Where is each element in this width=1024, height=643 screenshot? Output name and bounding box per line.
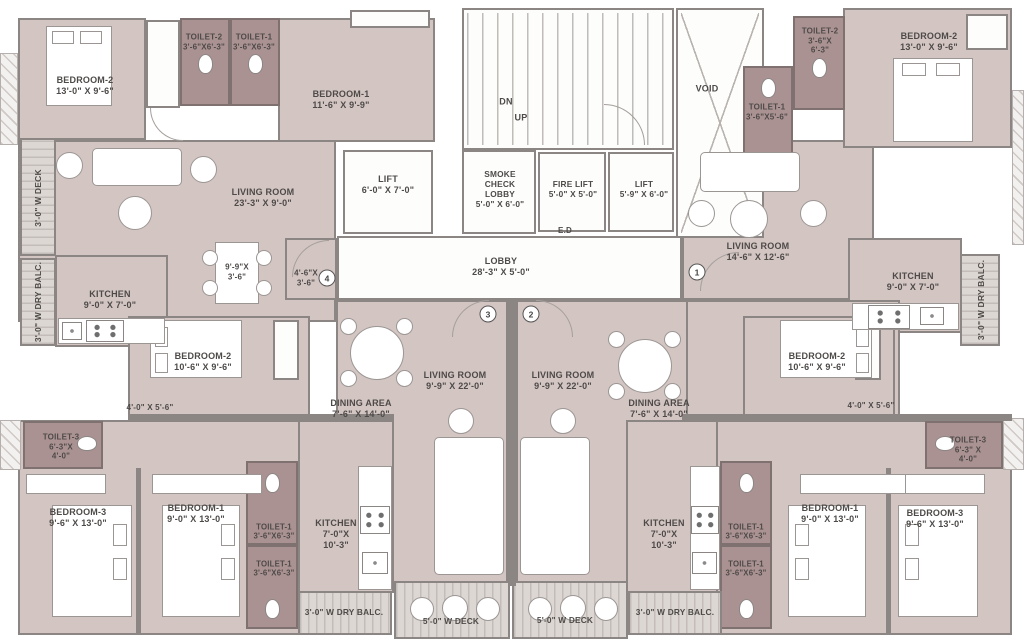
wall bbox=[136, 468, 141, 633]
open-hatch-area bbox=[1012, 90, 1024, 245]
stove-icon bbox=[691, 506, 719, 534]
unit4-bedroom2-label: BEDROOM-2 13'-0" X 9'-6" bbox=[56, 75, 114, 97]
stairs-dn-label: DN bbox=[499, 97, 512, 108]
pillow-icon bbox=[905, 558, 919, 580]
unit2-number-badge: 2 bbox=[523, 306, 540, 323]
unit2-toilet1a-label: TOILET-1 3'-6"X6'-3" bbox=[725, 523, 766, 542]
unit4-bedroom2b-label: BEDROOM-2 10'-6" X 9'-6" bbox=[174, 351, 232, 373]
deck-chair-icon bbox=[476, 597, 500, 621]
fire-lift-label: FIRE LIFT 5'-0" X 5'-0" bbox=[549, 180, 598, 200]
unit2-bedroom1-label: BEDROOM-1 9'-0" X 13'-0" bbox=[801, 503, 859, 525]
unit2-living-room-label: LIVING ROOM 9'-9" X 22'-0" bbox=[532, 370, 595, 392]
unit3-deck-label: 5'-0" W DECK bbox=[423, 617, 479, 627]
pillow-icon bbox=[795, 524, 809, 546]
armchair-icon bbox=[190, 156, 217, 183]
pillow-icon bbox=[221, 558, 235, 580]
pillow-icon bbox=[155, 353, 168, 373]
armchair-icon bbox=[688, 200, 715, 227]
sink-icon bbox=[692, 552, 717, 574]
unit4-toilet1-label: TOILET-1 3'-6"X6'-3" bbox=[233, 32, 275, 51]
void-label: VOID bbox=[696, 84, 719, 95]
lobby-label: LOBBY 28'-3" X 5'-0" bbox=[472, 256, 530, 278]
open-hatch-area bbox=[0, 420, 21, 470]
open-hatch-area bbox=[1003, 418, 1024, 470]
unit3-toilet1a-label: TOILET-1 3'-6"X6'-3" bbox=[253, 523, 294, 542]
unit4-dining-table-label: 9'-9"X 3'-6" bbox=[225, 262, 249, 281]
room-unit4-toilet1 bbox=[230, 18, 280, 106]
sink-icon bbox=[62, 322, 82, 340]
armchair-icon bbox=[448, 408, 474, 434]
chair-icon bbox=[256, 250, 272, 266]
sink-icon bbox=[362, 552, 388, 574]
chair-icon bbox=[256, 280, 272, 296]
wardrobe bbox=[152, 474, 262, 494]
pillow-icon bbox=[856, 353, 869, 373]
wall bbox=[682, 414, 1012, 421]
unit4-kitchen-label: KITCHEN 9'-0" X 7'-0" bbox=[84, 289, 136, 311]
unit4-foyer-label: 4'-6"X 3'-6" bbox=[294, 268, 318, 287]
dry-balcony-east-label: 3'-0" W DRY BALC. bbox=[976, 260, 986, 340]
wc-fixture-icon bbox=[265, 473, 280, 493]
wardrobe bbox=[800, 474, 910, 494]
chair-icon bbox=[340, 370, 357, 387]
wardrobe bbox=[26, 474, 106, 494]
wc-fixture-icon bbox=[198, 54, 213, 74]
unit4-passage-label: 4'-0" X 5'-6" bbox=[127, 403, 174, 413]
armchair-icon bbox=[550, 408, 576, 434]
chair-icon bbox=[202, 250, 218, 266]
unit2-toilet3-label: TOILET-3 6'-3" X 4'-0" bbox=[950, 436, 987, 465]
unit3-living-room-label: LIVING ROOM 9'-9" X 22'-0" bbox=[424, 370, 487, 392]
party-wall bbox=[508, 298, 516, 586]
deck-west-label: 3'-0" W DECK bbox=[33, 169, 43, 227]
dining-table bbox=[350, 326, 404, 380]
room-unit4-bedroom1 bbox=[278, 18, 435, 142]
sofa bbox=[700, 152, 800, 192]
deck-chair-icon bbox=[594, 597, 618, 621]
pillow-icon bbox=[113, 558, 127, 580]
pillow-icon bbox=[795, 558, 809, 580]
bed bbox=[893, 58, 973, 142]
stove-icon bbox=[86, 320, 124, 342]
wc-fixture-icon bbox=[739, 473, 754, 493]
wc-fixture-icon bbox=[77, 436, 97, 451]
unit3-dining-area-label: DINING AREA 7'-6" X 14'-0" bbox=[330, 398, 391, 420]
unit1-living-room-label: LIVING ROOM 14'-6" X 12'-6" bbox=[727, 241, 790, 263]
core-lift-label: LIFT 5'-9" X 6'-0" bbox=[620, 180, 669, 200]
unit3-kitchen-label: KITCHEN 7'-0"X 10'-3" bbox=[315, 518, 356, 550]
unit2-deck-label: 5'-0" W DECK bbox=[537, 616, 593, 626]
coffee-table-icon bbox=[730, 200, 768, 238]
deck-unit3 bbox=[394, 581, 510, 639]
wardrobe bbox=[966, 14, 1008, 50]
unit3-number-badge: 3 bbox=[480, 306, 497, 323]
ed-label: E.D bbox=[558, 226, 572, 236]
stove-icon bbox=[868, 305, 910, 329]
unit4-living-room-label: LIVING ROOM 23'-3" X 9'-0" bbox=[232, 187, 295, 209]
armchair-icon bbox=[56, 152, 83, 179]
dry-balcony-west-label: 3'-0" W DRY BALC. bbox=[33, 262, 43, 342]
pillow-icon bbox=[113, 524, 127, 546]
room-unit4-toilet2 bbox=[180, 18, 230, 106]
pillow-icon bbox=[936, 63, 960, 76]
unit1-toilet2-label: TOILET-2 3'-6"X 6'-3" bbox=[802, 27, 839, 56]
wardrobe bbox=[905, 474, 985, 494]
wc-fixture-icon bbox=[812, 58, 827, 78]
deck-unit2 bbox=[512, 581, 628, 639]
unit1-passage-label: 4'-0" X 5'-6" bbox=[848, 401, 895, 411]
pillow-icon bbox=[856, 327, 869, 347]
coffee-table-icon bbox=[118, 196, 152, 230]
wc-fixture-icon bbox=[761, 78, 776, 98]
wardrobe bbox=[146, 20, 180, 108]
unit2-dining-area-label: DINING AREA 7'-6" X 14'-0" bbox=[628, 398, 689, 420]
wc-fixture-icon bbox=[248, 54, 263, 74]
wardrobe bbox=[350, 10, 430, 28]
unit3-dry-balcony-label: 3'-0" W DRY BALC. bbox=[305, 608, 383, 618]
unit4-number-badge: 4 bbox=[319, 270, 336, 287]
chair-icon bbox=[396, 370, 413, 387]
pillow-icon bbox=[52, 31, 74, 44]
open-hatch-area bbox=[0, 53, 18, 145]
stove-icon bbox=[360, 506, 390, 534]
unit2-bedroom3-label: BEDROOM-3 9'-6" X 13'-0" bbox=[906, 508, 964, 530]
floor-plan: BEDROOM-2 13'-0" X 9'-6" TOILET-2 3'-6"X… bbox=[0, 0, 1024, 643]
unit1-toilet1-label: TOILET-1 3'-6"X5'-6" bbox=[746, 102, 788, 121]
door-arc-icon bbox=[150, 108, 183, 141]
pillow-icon bbox=[902, 63, 926, 76]
unit4-toilet2-label: TOILET-2 3'-6"X6'-3" bbox=[183, 32, 225, 51]
room-unit2-toilet1b bbox=[720, 545, 772, 629]
chair-icon bbox=[340, 318, 357, 335]
unit2-dry-balcony-label: 3'-0" W DRY BALC. bbox=[636, 608, 714, 618]
dining-table bbox=[618, 339, 672, 393]
sofa bbox=[520, 437, 590, 575]
room-staircase bbox=[462, 8, 674, 150]
pillow-icon bbox=[80, 31, 102, 44]
unit3-bedroom3-label: BEDROOM-3 9'-6" X 13'-0" bbox=[49, 507, 107, 529]
unit2-toilet1b-label: TOILET-1 3'-6"X6'-3" bbox=[725, 560, 766, 579]
unit1-number-badge: 1 bbox=[689, 264, 706, 281]
chair-icon bbox=[396, 318, 413, 335]
wc-fixture-icon bbox=[739, 599, 754, 619]
room-unit3-toilet1b bbox=[246, 545, 298, 629]
chair-icon bbox=[202, 280, 218, 296]
armchair-icon bbox=[800, 200, 827, 227]
unit4-bedroom1-label: BEDROOM-1 11'-6" X 9'-9" bbox=[312, 89, 369, 111]
pillow-icon bbox=[221, 524, 235, 546]
wc-fixture-icon bbox=[265, 599, 280, 619]
unit1-bedroom2b-label: BEDROOM-2 10'-6" X 9'-6" bbox=[788, 351, 846, 373]
sink-icon bbox=[920, 307, 944, 325]
sofa bbox=[434, 437, 504, 575]
chair-icon bbox=[664, 331, 681, 348]
stairs-up-label: UP bbox=[515, 113, 528, 124]
unit3-bedroom1-label: BEDROOM-1 9'-0" X 13'-0" bbox=[167, 503, 225, 525]
unit1-bedroom2-label: BEDROOM-2 13'-0" X 9'-6" bbox=[900, 31, 958, 53]
chair-icon bbox=[608, 331, 625, 348]
unit4-lift-label: LIFT 6'-0" X 7'-0" bbox=[362, 174, 414, 196]
sofa bbox=[92, 148, 182, 186]
smoke-check-lobby-label: SMOKE CHECK LOBBY 5'-0" X 6'-0" bbox=[476, 170, 525, 210]
unit3-toilet1b-label: TOILET-1 3'-6"X6'-3" bbox=[253, 560, 294, 579]
unit1-kitchen-label: KITCHEN 9'-0" X 7'-0" bbox=[887, 271, 939, 293]
unit2-kitchen-label: KITCHEN 7'-0"X 10'-3" bbox=[643, 518, 684, 550]
chair-icon bbox=[608, 383, 625, 400]
unit3-toilet3-label: TOILET-3 6'-3"X 4'-0" bbox=[43, 433, 80, 462]
wardrobe bbox=[273, 320, 299, 380]
